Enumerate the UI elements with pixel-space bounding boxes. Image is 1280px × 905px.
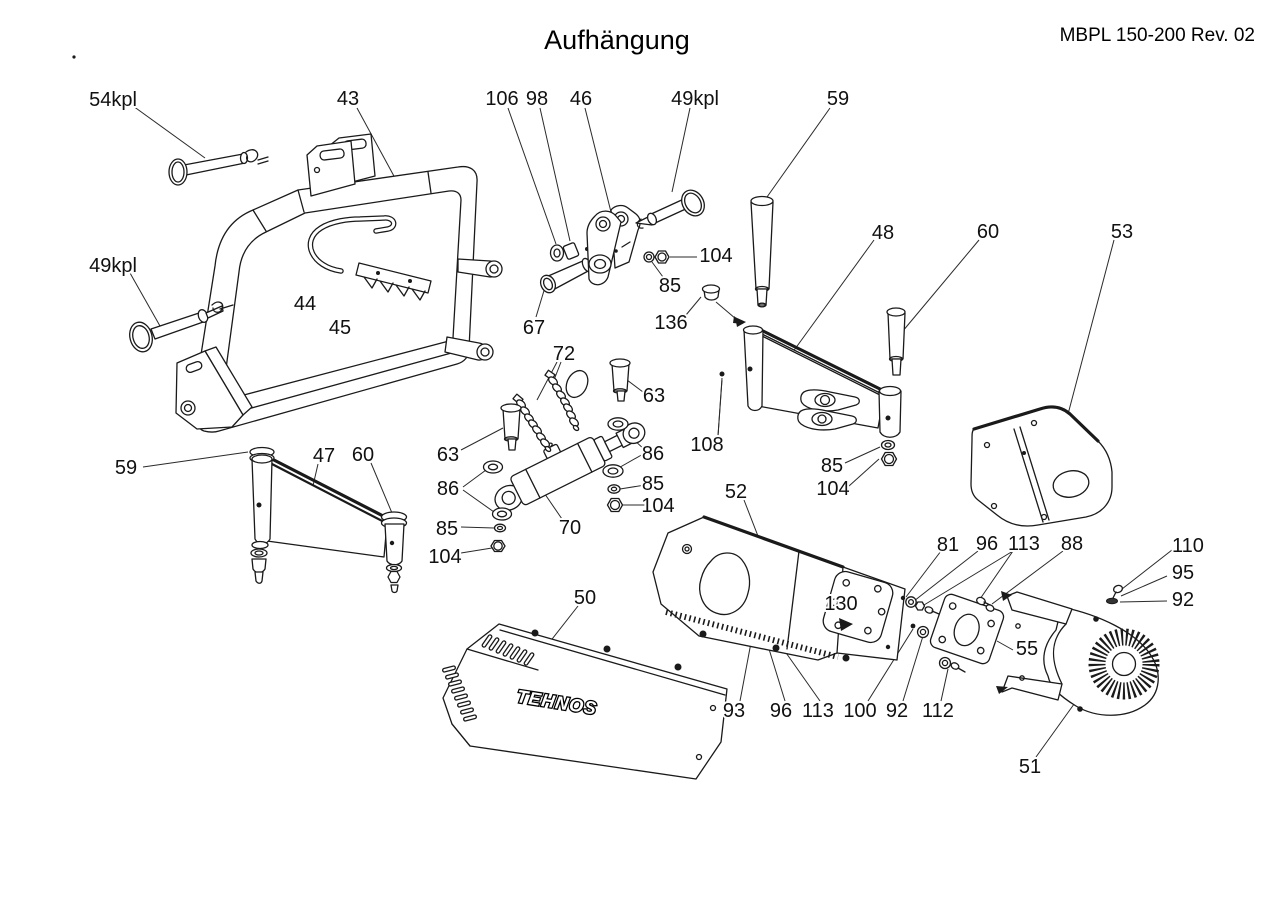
callout-93: 93	[723, 700, 745, 722]
callout-67: 67	[523, 317, 545, 339]
callout-110: 110	[1172, 535, 1204, 557]
callout-52: 52	[725, 481, 747, 503]
callout-86-left: 86	[437, 478, 459, 500]
callout-72: 72	[553, 343, 575, 365]
callout-46: 46	[570, 88, 592, 110]
callout-85-clevis: 85	[659, 275, 681, 297]
callout-104-clevis: 104	[699, 245, 732, 267]
callout-59-left: 59	[115, 457, 137, 479]
part-side-plate-52	[653, 517, 905, 662]
page-title: Aufhängung	[544, 25, 690, 55]
callout-113-top: 113	[1008, 533, 1040, 555]
callout-45: 45	[329, 317, 351, 339]
callout-108: 108	[690, 434, 723, 456]
callout-54kpl: 54kpl	[89, 89, 137, 111]
callout-112: 112	[922, 700, 954, 722]
callout-96-bottom: 96	[770, 700, 792, 722]
callout-49kpl-top: 49kpl	[671, 88, 719, 110]
callout-100: 100	[843, 700, 876, 722]
callout-49kpl-left: 49kpl	[89, 255, 137, 277]
callout-85-arm48: 85	[821, 455, 843, 477]
callout-85-left: 85	[436, 518, 458, 540]
callout-98: 98	[526, 88, 548, 110]
callout-50: 50	[574, 587, 596, 609]
diagram-page: Aufhängung MBPL 150-200 Rev. 02	[0, 0, 1280, 905]
callout-43: 43	[337, 88, 359, 110]
callout-85-right: 85	[642, 473, 664, 495]
callout-96-top: 96	[976, 533, 998, 555]
stray-dot	[72, 55, 75, 58]
callout-88: 88	[1061, 533, 1083, 555]
callout-63-right: 63	[643, 385, 665, 407]
callout-104-left: 104	[428, 546, 461, 568]
callout-130: 130	[824, 593, 857, 615]
callout-60-left: 60	[352, 444, 374, 466]
callout-51: 51	[1019, 756, 1041, 778]
callout-63-left: 63	[437, 444, 459, 466]
part-cover-plate-53	[971, 407, 1112, 526]
callout-106: 106	[485, 88, 518, 110]
part-main-frame-43	[176, 134, 502, 432]
callout-92-right: 92	[1172, 589, 1194, 611]
callout-44: 44	[294, 293, 316, 315]
callout-104-arm48: 104	[816, 478, 849, 500]
callout-55: 55	[1016, 638, 1038, 660]
callout-70: 70	[559, 517, 581, 539]
part-tehnos-cover-50: TEHNOS	[442, 624, 727, 779]
doc-reference: MBPL 150-200 Rev. 02	[1060, 25, 1255, 46]
callout-59-top: 59	[827, 88, 849, 110]
callout-92-bottom: 92	[886, 700, 908, 722]
exploded-diagram: Aufhängung MBPL 150-200 Rev. 02	[0, 0, 1280, 905]
callout-48: 48	[872, 222, 894, 244]
callout-47: 47	[313, 445, 335, 467]
callout-104-right: 104	[641, 495, 674, 517]
part-lower-arm-47	[250, 448, 407, 593]
part-upper-arm-48	[735, 308, 905, 466]
part-pin-59-right	[751, 197, 773, 307]
part-grease-hoses-72	[513, 367, 592, 452]
callout-113-bottom: 113	[802, 700, 834, 722]
callout-95: 95	[1172, 562, 1194, 584]
callout-53: 53	[1111, 221, 1133, 243]
callout-81: 81	[937, 534, 959, 556]
callout-136: 136	[654, 312, 687, 334]
callout-60-right: 60	[977, 221, 999, 243]
part-lynch-pin-54kpl	[169, 150, 268, 185]
callout-86-right: 86	[642, 443, 664, 465]
leader-line	[718, 378, 722, 436]
